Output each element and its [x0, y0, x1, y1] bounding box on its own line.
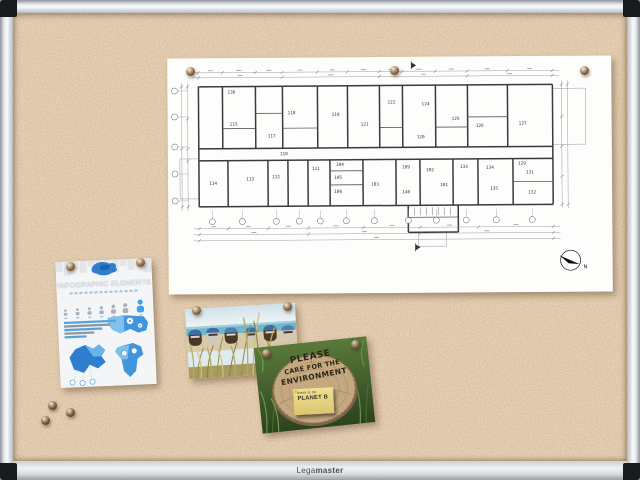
- room-number-label: 105: [334, 175, 342, 181]
- room-number-label: 111: [312, 166, 320, 172]
- figure-caption-mark: [100, 316, 103, 317]
- room-number-label: 113: [246, 176, 254, 182]
- dim-text-mark: [507, 73, 512, 74]
- room-number-label: 103: [371, 182, 379, 188]
- dim-text-mark: [447, 225, 452, 226]
- dim-text-mark: [238, 75, 243, 76]
- room-number-label: 126: [476, 123, 484, 129]
- dimension-line: [192, 70, 559, 73]
- dim-text-mark: [361, 69, 366, 70]
- room-number-label: 136: [227, 90, 235, 96]
- push-pin: [41, 416, 50, 425]
- room-number-label: 129: [518, 161, 526, 167]
- frame-right-rail: [627, 0, 640, 480]
- room-number-label: 135: [490, 186, 498, 192]
- grid-bubble: [343, 218, 349, 224]
- dim-text-mark: [333, 225, 338, 226]
- grid-bubble: [296, 218, 302, 224]
- note-flag-icon: [294, 390, 298, 394]
- africa-map: [115, 342, 144, 377]
- plan-wall: [199, 204, 553, 206]
- push-pin: [283, 302, 292, 311]
- person-icon: [100, 306, 103, 309]
- figure-caption-mark: [64, 318, 67, 319]
- push-pin: [136, 258, 145, 267]
- grid-bubble: [172, 171, 178, 177]
- grid-bubble: [529, 216, 535, 222]
- room-number-label: 122: [388, 99, 396, 105]
- dim-text-mark: [297, 70, 302, 71]
- room-number-label: 102: [426, 167, 434, 173]
- dim-text-mark: [513, 224, 518, 225]
- dimension-line: [193, 238, 560, 241]
- room-number-label: 101: [440, 182, 448, 188]
- grid-bubble: [172, 198, 178, 204]
- grid-bubble: [433, 217, 439, 223]
- infographic-graphics: [55, 258, 156, 388]
- grid-bubble: [405, 217, 411, 223]
- dim-text-mark: [485, 68, 490, 69]
- plan-wall: [552, 84, 553, 204]
- person-icon: [123, 308, 129, 313]
- room-number-label: 109: [402, 164, 410, 170]
- figure-caption-mark: [112, 316, 115, 317]
- push-pin: [390, 66, 399, 75]
- dim-text-mark: [421, 74, 426, 75]
- corner-cap-top-right: [623, 0, 640, 17]
- room-number-label: 112: [272, 174, 280, 180]
- room-number-label: 134: [486, 165, 494, 171]
- person-icon: [137, 306, 145, 313]
- plan-wall: [198, 84, 552, 86]
- grid-bubble: [493, 217, 499, 223]
- figure-caption-mark: [88, 317, 91, 318]
- section-marker-flag: [411, 62, 416, 68]
- person-icon: [137, 299, 142, 304]
- person-icon: [76, 312, 80, 315]
- grid-bubble: [371, 218, 377, 224]
- room-number-label: 132: [528, 189, 536, 195]
- dim-text-mark: [211, 226, 216, 227]
- plan-annex: [552, 88, 585, 144]
- room-number-label: 106: [334, 189, 342, 195]
- room-number-label: 104: [336, 162, 344, 168]
- person-icon: [99, 310, 104, 314]
- grid-bubble: [172, 144, 178, 150]
- frame-left-rail: [0, 0, 13, 480]
- brand-bold: master: [315, 466, 343, 475]
- person-icon: [123, 303, 127, 307]
- environment-poster: PLEASE CARE FOR THE ENVIRONMENT there is…: [254, 336, 375, 433]
- section-marker-flag: [415, 244, 420, 250]
- europe-map: [68, 344, 106, 386]
- corner-cap-top-left: [0, 0, 17, 17]
- grid-bubble: [209, 219, 215, 225]
- dim-text-mark: [527, 68, 532, 69]
- grid-bubble: [171, 88, 177, 94]
- figure-caption-mark: [76, 317, 79, 318]
- bar: [64, 323, 110, 327]
- bar: [64, 331, 94, 335]
- person-icon: [64, 313, 68, 316]
- dim-text-mark: [449, 69, 454, 70]
- person-icon: [111, 305, 115, 309]
- plan-annex: [180, 159, 199, 199]
- room-number-label: 127: [519, 121, 527, 127]
- figure-caption-mark: [124, 315, 127, 316]
- plan-wall: [199, 158, 553, 160]
- room-number-label: 121: [361, 122, 369, 128]
- brand-logo: Legamaster: [0, 466, 640, 475]
- room-number-label: 115: [230, 122, 238, 128]
- person-icon: [88, 307, 91, 310]
- floor-plan-drawing: 1361151171181191211221241201251261271101…: [167, 55, 613, 294]
- person-icon: [111, 309, 116, 314]
- push-pin: [351, 340, 360, 349]
- note-big-text: PLANET B: [297, 394, 331, 402]
- north-label: N: [584, 264, 588, 270]
- push-pin: [66, 262, 75, 271]
- grid-bubble: [317, 218, 323, 224]
- usa-map: [108, 314, 149, 334]
- bar: [64, 327, 102, 331]
- room-number-label: 120: [417, 134, 425, 140]
- dim-text-mark: [246, 226, 251, 227]
- push-pin: [192, 306, 201, 315]
- room-number-label: 110: [280, 151, 288, 157]
- push-pin: [580, 66, 589, 75]
- dimension-line: [192, 75, 559, 78]
- sticky-note: there is no PLANET B: [293, 387, 334, 415]
- floor-plan-paper: 1361151171181191211221241201251261271101…: [167, 55, 613, 294]
- frame-top-rail: [0, 0, 640, 13]
- room-number-label: 119: [332, 112, 340, 118]
- dim-text-mark: [236, 70, 241, 71]
- dim-text-mark: [266, 70, 271, 71]
- grid-bubble: [239, 219, 245, 225]
- dim-text-mark: [328, 74, 333, 75]
- room-number-label: 118: [288, 110, 296, 116]
- push-pin: [48, 401, 57, 410]
- infographic-poster: INFOGRAPHIC ELEMENTS: [55, 258, 156, 388]
- push-pin: [66, 408, 75, 417]
- bar: [65, 335, 87, 338]
- room-number-label: 114: [209, 181, 217, 187]
- brand-light: Lega: [296, 466, 315, 475]
- dim-text-mark: [374, 237, 379, 238]
- dim-text-mark: [251, 232, 256, 233]
- plan-wall: [199, 146, 553, 148]
- plan-wall: [198, 87, 199, 207]
- push-pin: [186, 67, 195, 76]
- cork-notice-board: 1361151171181191211221241201251261271101…: [0, 0, 640, 480]
- dim-text-mark: [389, 225, 394, 226]
- dim-text-mark: [484, 230, 489, 231]
- dim-text-mark: [208, 70, 213, 71]
- dim-text-mark: [416, 69, 421, 70]
- room-number-label: 140: [402, 189, 410, 195]
- room-number-label: 117: [268, 133, 276, 139]
- person-icon: [64, 309, 67, 312]
- room-number-label: 133: [460, 164, 468, 170]
- grid-bubble: [463, 217, 469, 223]
- room-number-label: 131: [526, 169, 534, 175]
- figure-caption-mark: [139, 314, 142, 315]
- person-icon: [76, 308, 79, 311]
- room-number-label: 125: [452, 116, 460, 122]
- dim-text-mark: [330, 69, 335, 70]
- person-icon: [87, 311, 91, 315]
- grid-bubble: [172, 114, 178, 120]
- room-number-label: 124: [422, 101, 430, 107]
- dim-text-mark: [362, 231, 367, 232]
- push-pin: [262, 349, 271, 358]
- grid-bubble: [273, 218, 279, 224]
- north-arrow: [560, 255, 580, 264]
- dimension-line: [193, 232, 560, 235]
- dim-text-mark: [286, 226, 291, 227]
